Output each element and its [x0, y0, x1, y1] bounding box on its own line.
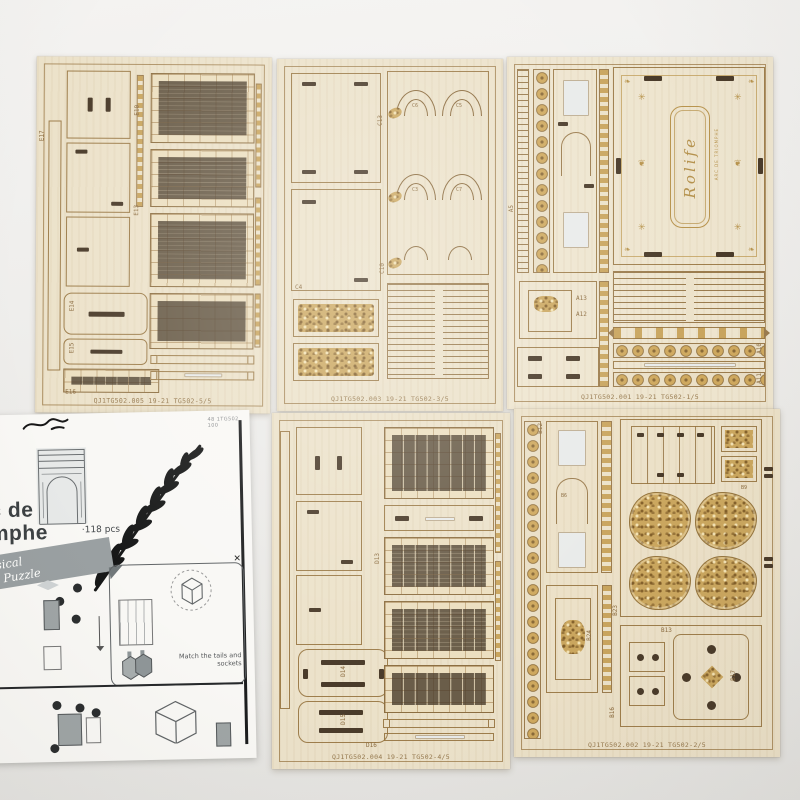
manual-title-line1: c de	[0, 498, 48, 522]
cut-slot	[566, 374, 580, 379]
wood-sheet-top-left: E17 E10 E13 E14 E15 E16 QJ1TG502.005 19-…	[35, 56, 272, 413]
cut-slot	[644, 76, 662, 81]
bar-rack-panel	[631, 426, 715, 484]
cut-slot	[528, 356, 542, 361]
slat-strip	[517, 69, 529, 273]
piece-label: D15	[341, 714, 347, 725]
cut-slot	[716, 76, 734, 81]
cut-slot	[337, 456, 342, 470]
window-panel	[553, 69, 597, 273]
piece-outline	[63, 339, 147, 365]
ornate-panel	[721, 456, 757, 482]
relief-sculpture-panel	[695, 492, 757, 550]
piece-label: A5	[509, 205, 515, 212]
piece-label: D13	[375, 553, 381, 564]
brick-panel	[384, 537, 494, 595]
window-cutout	[558, 430, 586, 466]
brick-panel	[150, 213, 254, 288]
piece-outline	[66, 143, 130, 213]
cut-slot	[321, 660, 365, 665]
piece-label: C13	[378, 115, 384, 126]
tail-pieces-diagram	[119, 649, 156, 684]
step-dot	[92, 708, 101, 717]
assembly-piece-sketch	[118, 599, 153, 646]
tooth-strip	[255, 84, 262, 188]
rail-tab	[247, 355, 254, 364]
decorative-scribble	[21, 416, 71, 433]
flow-arrow-tip	[96, 646, 104, 651]
product-photo: E17 E10 E13 E14 E15 E16 QJ1TG502.005 19-…	[0, 0, 800, 800]
cutout-slot	[415, 735, 465, 739]
coin-strip	[533, 69, 550, 273]
relief-group-panel: B9	[620, 419, 762, 617]
tooth-strip	[599, 69, 609, 273]
tooth-strip	[602, 585, 612, 693]
piece-label: C4	[295, 285, 302, 291]
arch-piece	[442, 174, 482, 200]
cut-slot	[677, 473, 684, 477]
emblem-piece	[673, 634, 749, 720]
piece-outline	[296, 575, 362, 645]
piece-label: E15	[69, 343, 75, 354]
slat-divider	[686, 274, 694, 322]
gold-engraving	[725, 430, 753, 448]
cut-hole	[652, 654, 659, 661]
cut-slot	[111, 202, 123, 206]
brick-panel	[384, 427, 494, 499]
cut-slot	[637, 433, 644, 437]
emblem-group-panel: B13 B17	[620, 625, 762, 727]
piece-label: E14	[70, 301, 76, 312]
cut-slot	[354, 82, 368, 86]
manual-corner-code: 48 1TG502 100	[207, 416, 249, 429]
arch-panel: C6 C5 C3 C7	[387, 71, 489, 275]
window-cutout	[563, 212, 589, 248]
flow-arrow-line	[99, 616, 101, 646]
sheet-code: QJ1TG502.004 19-21 TG502-4/5	[272, 753, 510, 761]
piece-label: A12	[576, 312, 587, 318]
arch-piece	[448, 246, 472, 260]
cut-slot	[354, 278, 368, 282]
cut-slot	[395, 516, 409, 521]
piece-label: A10	[757, 343, 763, 354]
leaf-ornament	[387, 256, 404, 271]
cut-slot	[644, 252, 662, 257]
cut-slot	[616, 158, 621, 174]
piece-outline	[629, 642, 665, 672]
piece-label: B17	[731, 670, 737, 681]
assembly-piece-sketch	[43, 646, 61, 670]
ornate-panel	[721, 426, 757, 452]
cut-slot	[528, 374, 542, 379]
rail-tab	[247, 371, 254, 380]
rail-piece	[613, 361, 765, 369]
cutout-slot	[644, 363, 736, 367]
gold-engraving	[298, 304, 374, 332]
cut-hole	[637, 688, 644, 695]
cut-hole	[637, 654, 644, 661]
ornate-panel	[293, 299, 379, 337]
cutout-slot	[184, 373, 222, 377]
piece-label: B12	[538, 423, 544, 434]
socket-diagram	[168, 568, 215, 613]
piece-label: A11	[757, 373, 763, 384]
rail-piece	[384, 733, 494, 741]
step-dot	[72, 614, 81, 623]
piece-outline: A13 A12	[519, 281, 597, 339]
gold-engraving	[534, 296, 558, 312]
sheet-code: QJ1TG502.002 19-21 TG502-2/5	[514, 741, 780, 749]
cut-slot	[75, 150, 87, 154]
cut-slot	[315, 456, 320, 470]
arrow-tip	[608, 328, 614, 338]
cut-slot	[303, 669, 308, 679]
base-panel: Rolife ARC DE TRIOMPHE ✳ ❦ ✳ ✳ ❦ ✳ ❧ ❧ ❧…	[613, 67, 765, 265]
slat-panel	[613, 271, 765, 323]
piece-outline	[280, 431, 290, 709]
cut-slot	[309, 608, 321, 612]
tooth-strip	[255, 198, 261, 286]
rail-piece	[384, 719, 494, 728]
rail-tab	[488, 719, 495, 728]
tooth-strip	[601, 421, 612, 573]
piece-label: A13	[576, 296, 587, 302]
piece-outline	[67, 71, 131, 139]
piece-label: B13	[661, 628, 672, 634]
arrow-tip	[764, 328, 770, 338]
cut-slot	[354, 170, 368, 174]
tooth-strip	[495, 433, 501, 553]
cut-slot	[764, 474, 773, 478]
assembly-detail-box: Match the tails and sockets	[109, 562, 247, 687]
arch-piece	[442, 90, 482, 116]
ornament-icon: ❧	[748, 246, 755, 254]
piece-label: B6	[561, 494, 567, 499]
piece-label: C3	[412, 188, 418, 193]
cut-slot	[321, 682, 365, 687]
window-cutout	[563, 80, 589, 116]
brick-panel	[384, 601, 494, 659]
gold-engraving	[725, 460, 753, 478]
brick-strip	[63, 369, 159, 394]
coin-strip	[524, 421, 541, 739]
piece-outline: D15	[298, 701, 388, 743]
piece-outline	[296, 427, 362, 495]
cut-slot	[469, 516, 483, 521]
relief-sculpture-panel	[629, 492, 691, 550]
rail-piece	[151, 355, 253, 365]
step-dot	[52, 701, 61, 710]
manual-title-line2: mphe	[0, 521, 48, 545]
cartouche-inner: Rolife	[674, 110, 706, 224]
ornament-icon: ❧	[624, 246, 631, 254]
gold-engraving	[298, 348, 374, 376]
cut-slot	[302, 170, 316, 174]
tooth-strip	[495, 561, 501, 661]
piece-label: B23	[613, 605, 619, 616]
engraving-subtext: ARC DE TRIOMPHE	[714, 128, 719, 180]
piece-outline	[629, 676, 665, 706]
ornament-icon: ✳	[734, 94, 742, 103]
piece-label: D14	[341, 666, 347, 677]
cut-slot	[88, 98, 93, 112]
ornament-icon: ❦	[734, 160, 742, 169]
cut-slot	[764, 467, 773, 471]
wood-sheet-top-right: A13 A12 Rolife ARC DE TRIOMPHE ✳ ❦ ✳ ✳ ❦…	[507, 57, 773, 409]
cut-slot	[764, 557, 773, 561]
wood-sheet-top-middle: C6 C5 C3 C7 C13 C4 C10 QJ1TG502.003 19-2…	[277, 59, 503, 411]
door-arch-line	[556, 478, 588, 524]
assembly-piece-sketch	[43, 600, 60, 630]
brand-engraving-text: Rolife	[681, 136, 699, 198]
cut-slot	[566, 356, 580, 361]
ornate-panel	[293, 343, 379, 381]
brand-cartouche: Rolife	[670, 106, 710, 228]
door-arch-line	[561, 132, 591, 176]
ornament-icon: ✳	[734, 224, 742, 233]
piece-outline: D14	[298, 649, 388, 697]
piece-label: B24	[587, 630, 593, 641]
cut-slot	[89, 312, 125, 317]
step-dot	[75, 703, 84, 712]
rail-tab	[150, 371, 157, 380]
piece-label: B16	[610, 707, 616, 718]
cut-slot	[307, 510, 319, 514]
sheet-code: QJ1TG502.001 19-21 TG502-1/5	[507, 393, 773, 401]
instruction-manual: 48 1TG502 100	[0, 410, 257, 764]
relief-sculpture-panel	[629, 556, 691, 610]
ornament-icon: ❧	[624, 78, 631, 86]
sheet-code: QJ1TG502.003 19-21 TG502-3/5	[277, 395, 503, 403]
cut-hole	[652, 688, 659, 695]
piece-label: B9	[741, 486, 747, 491]
cut-hole	[707, 645, 716, 654]
brick-panel	[150, 149, 254, 208]
rail-piece	[151, 371, 253, 381]
piece-outline	[291, 73, 381, 183]
cut-slot	[764, 564, 773, 568]
ornament-icon: ❧	[748, 78, 755, 86]
piece-outline	[517, 347, 599, 387]
piece-label: E10	[135, 105, 141, 116]
sheet-code: QJ1TG502.005 19-21 TG502-5/5	[35, 396, 270, 405]
cut-slot	[106, 98, 111, 112]
piece-label: C10	[380, 263, 386, 274]
rail-tab	[150, 355, 157, 364]
cut-slot	[319, 728, 363, 733]
slat-divider	[435, 286, 443, 378]
gold-crest	[701, 666, 724, 689]
piece-label: C6	[412, 104, 418, 109]
arrow-rail	[613, 327, 765, 339]
cut-slot	[90, 350, 122, 354]
rail-tab	[383, 719, 390, 728]
tooth-strip	[136, 75, 144, 207]
piece-label: E17	[39, 130, 45, 141]
gold-engraving	[561, 620, 585, 654]
assembly-piece-sketch	[216, 722, 231, 746]
tooth-strip	[254, 294, 260, 348]
piece-label: C7	[456, 188, 462, 193]
window-cutout	[558, 532, 586, 568]
piece-outline	[66, 217, 130, 287]
piece-outline	[291, 189, 381, 291]
piece-label: E13	[134, 205, 140, 216]
coin-rail	[613, 343, 765, 358]
assembly-cube-diagram	[145, 697, 204, 744]
assembly-piece-sketch	[86, 717, 102, 743]
coin-rail	[613, 372, 765, 387]
slat-panel	[387, 283, 489, 379]
relief-sculpture-panel	[695, 556, 757, 610]
ornament-icon: ✳	[638, 224, 646, 233]
cutout-slot	[425, 517, 455, 521]
piece-outline	[296, 501, 362, 571]
brick-panel	[384, 665, 494, 713]
cut-slot	[697, 433, 704, 437]
wood-sheet-bottom-right: B6 B24 B23 B9	[514, 409, 780, 757]
cut-slot	[758, 158, 763, 174]
piece-label: C5	[456, 104, 462, 109]
cut-slot	[657, 433, 664, 437]
cut-slot	[77, 248, 89, 252]
piece-label: D16	[366, 743, 377, 749]
cut-slot	[302, 200, 316, 204]
brick-panel	[149, 293, 253, 350]
piece-outline	[63, 293, 147, 335]
ornament-icon: ✳	[638, 94, 646, 103]
cut-slot	[584, 184, 594, 188]
cut-slot	[558, 122, 568, 126]
cut-hole	[682, 673, 691, 682]
piece-outline: B24	[546, 585, 598, 693]
piece-outline	[384, 505, 494, 531]
piece-count: ·118 pcs	[82, 525, 120, 536]
wood-sheet-bottom-middle: D14 D15 D16 D13 QJ1TG502.004 19-21 TG502…	[272, 413, 510, 769]
cut-slot	[341, 560, 353, 564]
brick-panel	[150, 73, 254, 144]
assembly-piece-sketch	[58, 713, 83, 745]
piece-outline	[47, 120, 61, 370]
cut-hole	[707, 701, 716, 710]
window-panel: B6	[546, 421, 598, 573]
piece-label: E16	[65, 390, 76, 396]
cut-slot	[302, 82, 316, 86]
arch-piece	[404, 246, 428, 260]
manual-title: c de mphe	[0, 498, 48, 545]
ornament-icon: ❦	[638, 160, 646, 169]
cut-slot	[677, 433, 684, 437]
step-dot	[73, 583, 82, 592]
instruction-text: Match the tails and sockets	[155, 651, 241, 669]
cut-slot	[716, 252, 734, 257]
cut-slot	[657, 473, 664, 477]
